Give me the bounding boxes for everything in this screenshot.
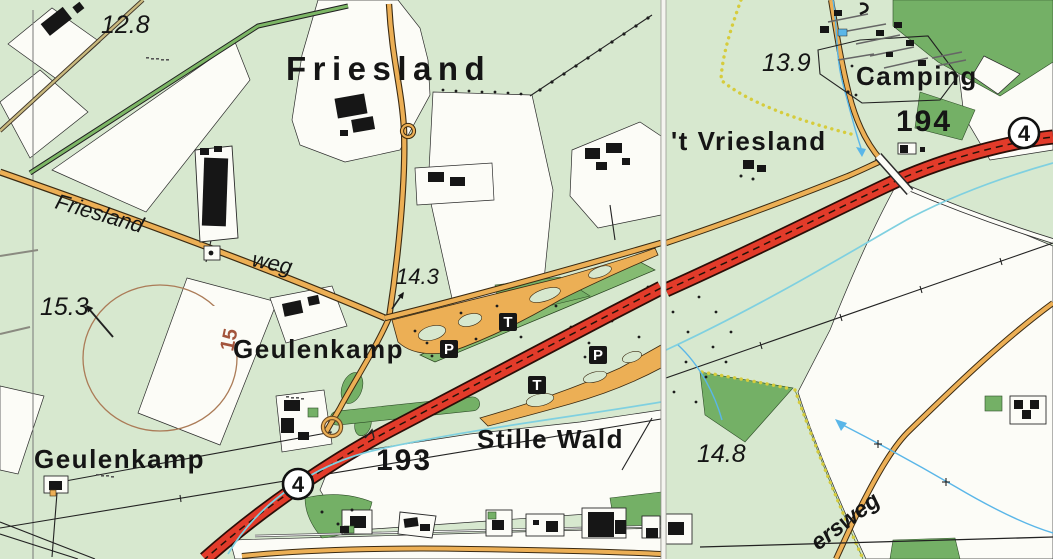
toilet-letter: T bbox=[503, 314, 512, 331]
route-number: 4 bbox=[1018, 121, 1031, 146]
toilet-letter: T bbox=[532, 377, 541, 394]
spot-height: 14.8 bbox=[697, 440, 746, 468]
locality-label: 't Vriesland bbox=[671, 126, 827, 156]
spot-height: 13.9 bbox=[762, 49, 811, 77]
parking-symbol: P bbox=[589, 346, 607, 364]
route-number: 4 bbox=[292, 472, 305, 497]
route-badge: 4 bbox=[1009, 118, 1039, 148]
pool bbox=[838, 29, 847, 36]
toilet-symbol: T bbox=[528, 376, 546, 394]
toilet-symbol: T bbox=[499, 313, 517, 331]
km-marker: 193 bbox=[376, 444, 432, 477]
forest-label: Stille Wald bbox=[477, 424, 624, 454]
map-panel-right: 4 13.9 Camping 194 't Vriesland 14.8 ers… bbox=[666, 0, 1053, 559]
spot-height: 12.8 bbox=[101, 11, 150, 39]
farm-label: Geulenkamp bbox=[34, 444, 205, 474]
campsite-label: Camping bbox=[856, 61, 978, 91]
parking-symbol: P bbox=[440, 340, 458, 358]
route-badge: 4 bbox=[283, 469, 313, 499]
parking-letter: P bbox=[593, 347, 603, 364]
km-marker: 194 bbox=[896, 105, 952, 138]
map-panel-left: 4 P T T P 15 Friesland bbox=[0, 0, 661, 559]
region-label: Friesland bbox=[286, 50, 491, 87]
panel-divider bbox=[661, 0, 666, 559]
spot-height: 14.3 bbox=[396, 264, 440, 289]
farm-label: Geulenkamp bbox=[233, 334, 404, 364]
topographic-map: 4 P T T P 15 Friesland bbox=[0, 0, 1053, 559]
spot-height: 15.3 bbox=[40, 293, 89, 321]
parking-letter: P bbox=[444, 341, 454, 358]
